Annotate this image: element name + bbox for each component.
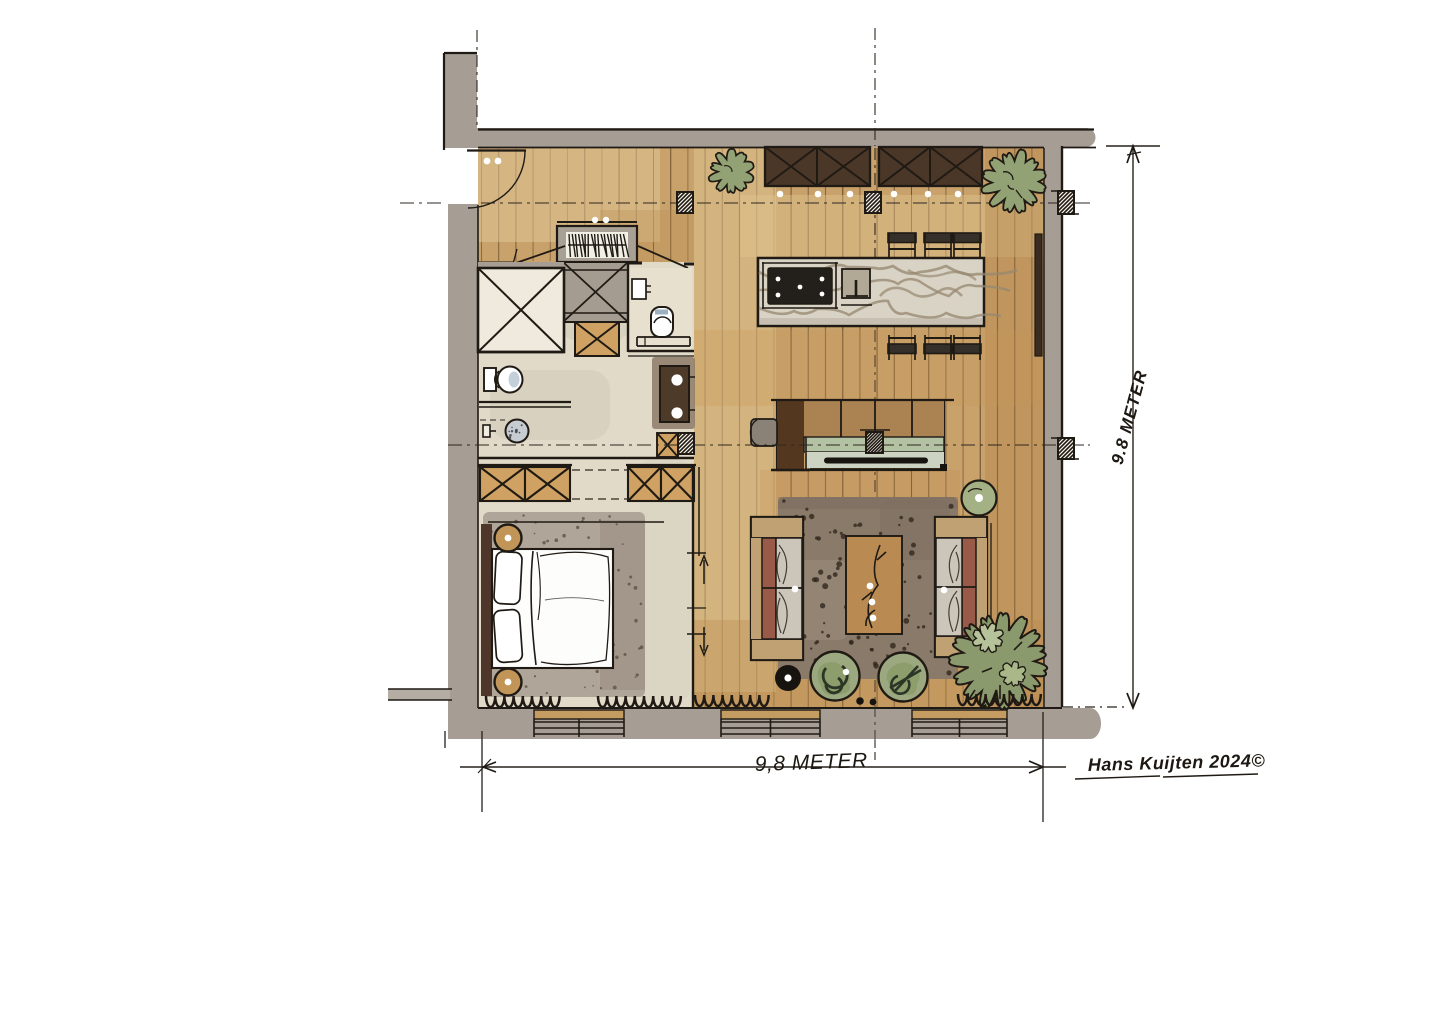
svg-text:Hans Kuijten 2024©: Hans Kuijten 2024© [1088, 750, 1266, 775]
svg-text:9.8 METER: 9.8 METER [1108, 368, 1151, 466]
svg-text:9,8 METER: 9,8 METER [754, 749, 868, 776]
